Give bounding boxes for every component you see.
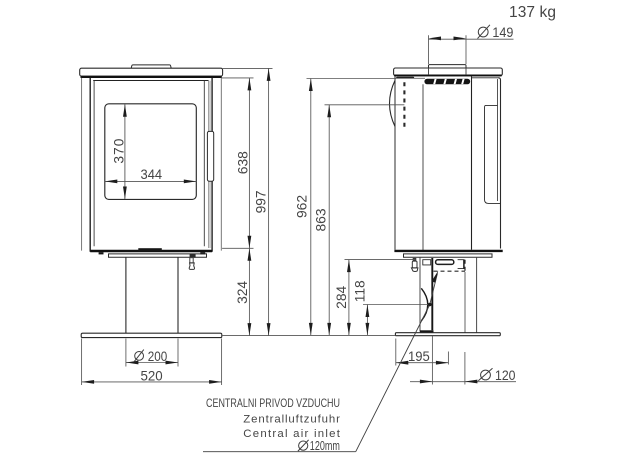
svg-text:Zentralluftzufuhr: Zentralluftzufuhr [243,413,340,425]
svg-text:863: 863 [314,208,329,231]
svg-text:370: 370 [111,138,126,163]
svg-text:520: 520 [141,368,164,383]
svg-text:118: 118 [353,280,368,302]
svg-text:200: 200 [148,349,168,364]
svg-text:149: 149 [492,25,513,40]
svg-text:120: 120 [495,368,516,383]
svg-text:344: 344 [141,167,163,182]
svg-text:962: 962 [295,195,310,218]
svg-text:CENTRALNI PRIVOD VZDUCHU: CENTRALNI PRIVOD VZDUCHU [206,396,340,410]
svg-text:120mm: 120mm [310,438,340,453]
svg-text:638: 638 [236,151,251,174]
svg-text:195: 195 [408,349,430,364]
svg-text:137 kg: 137 kg [509,4,556,21]
svg-text:284: 284 [334,285,349,308]
svg-text:324: 324 [235,281,250,304]
svg-text:997: 997 [254,190,269,213]
